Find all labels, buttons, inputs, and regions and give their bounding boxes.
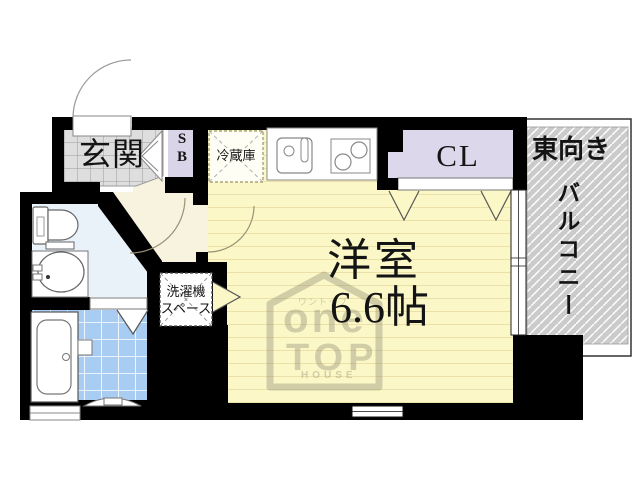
closet-label: CL xyxy=(403,139,513,172)
room-size-label: 6.6帖 xyxy=(330,284,429,332)
entrance-door-leaf xyxy=(73,116,131,136)
entrance-door xyxy=(73,60,131,136)
floor-plan-graphic xyxy=(0,0,640,480)
floor-plan: ワントップ one TOP HOUSE 玄関 S B 冷蔵庫 CL 東向き バル… xyxy=(0,0,640,480)
faucet-icon xyxy=(284,146,294,156)
bath-step xyxy=(30,406,80,420)
room-name-label: 洋室 xyxy=(327,237,421,285)
balcony-window xyxy=(511,190,526,335)
south-window xyxy=(352,406,403,417)
faucet-lever xyxy=(301,138,308,162)
stove-burner xyxy=(351,142,367,158)
vanity-sink xyxy=(32,251,88,297)
shoebox-label: S B xyxy=(173,130,191,166)
entrance-door-arc xyxy=(73,60,131,118)
balcony-label: バルコニー xyxy=(553,181,578,321)
refrigerator-label: 冷蔵庫 xyxy=(209,149,263,163)
kitchen-counter xyxy=(267,128,377,180)
bathtub xyxy=(31,312,78,402)
genkan-label: 玄関 xyxy=(79,137,145,172)
stove-burner xyxy=(335,154,351,170)
washer-space-label: 洗濯機 スペース xyxy=(156,283,216,317)
balcony-direction-label: 東向き xyxy=(532,136,610,164)
bath-shelf xyxy=(78,340,92,355)
toilet xyxy=(33,207,78,249)
